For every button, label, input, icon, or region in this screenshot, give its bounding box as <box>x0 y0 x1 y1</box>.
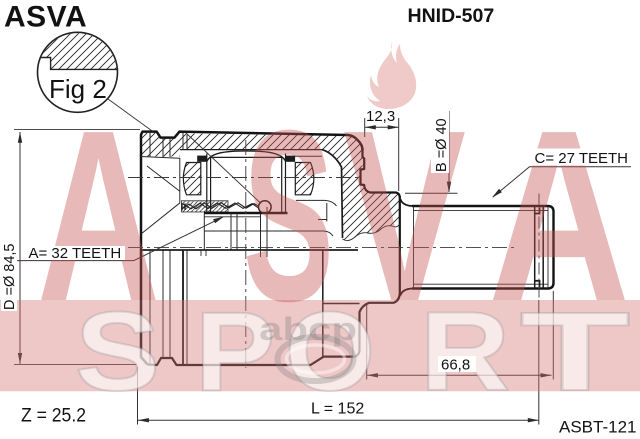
svg-text:12,3: 12,3 <box>366 108 395 125</box>
svg-text:T: T <box>520 289 630 414</box>
svg-text:R: R <box>420 289 510 414</box>
svg-text:HNID-507: HNID-507 <box>408 5 495 27</box>
svg-text:O: O <box>285 289 375 414</box>
svg-text:D =Ø 84,5: D =Ø 84,5 <box>2 244 18 311</box>
svg-text:ASVA: ASVA <box>4 1 87 34</box>
svg-text:ASBT-121: ASBT-121 <box>559 418 637 437</box>
svg-text:Fig 2: Fig 2 <box>49 74 107 104</box>
svg-text:Z = 25.2: Z = 25.2 <box>21 406 86 427</box>
svg-text:A= 32 TEETH: A= 32 TEETH <box>29 245 122 262</box>
svg-text:S: S <box>75 289 160 414</box>
svg-text:L = 152: L = 152 <box>311 401 364 418</box>
svg-text:P: P <box>195 289 275 414</box>
svg-text:66,8: 66,8 <box>441 357 470 374</box>
svg-text:abcp: abcp <box>259 311 357 347</box>
svg-text:C= 27 TEETH: C= 27 TEETH <box>535 150 629 167</box>
svg-text:B =Ø 40: B =Ø 40 <box>434 118 450 172</box>
